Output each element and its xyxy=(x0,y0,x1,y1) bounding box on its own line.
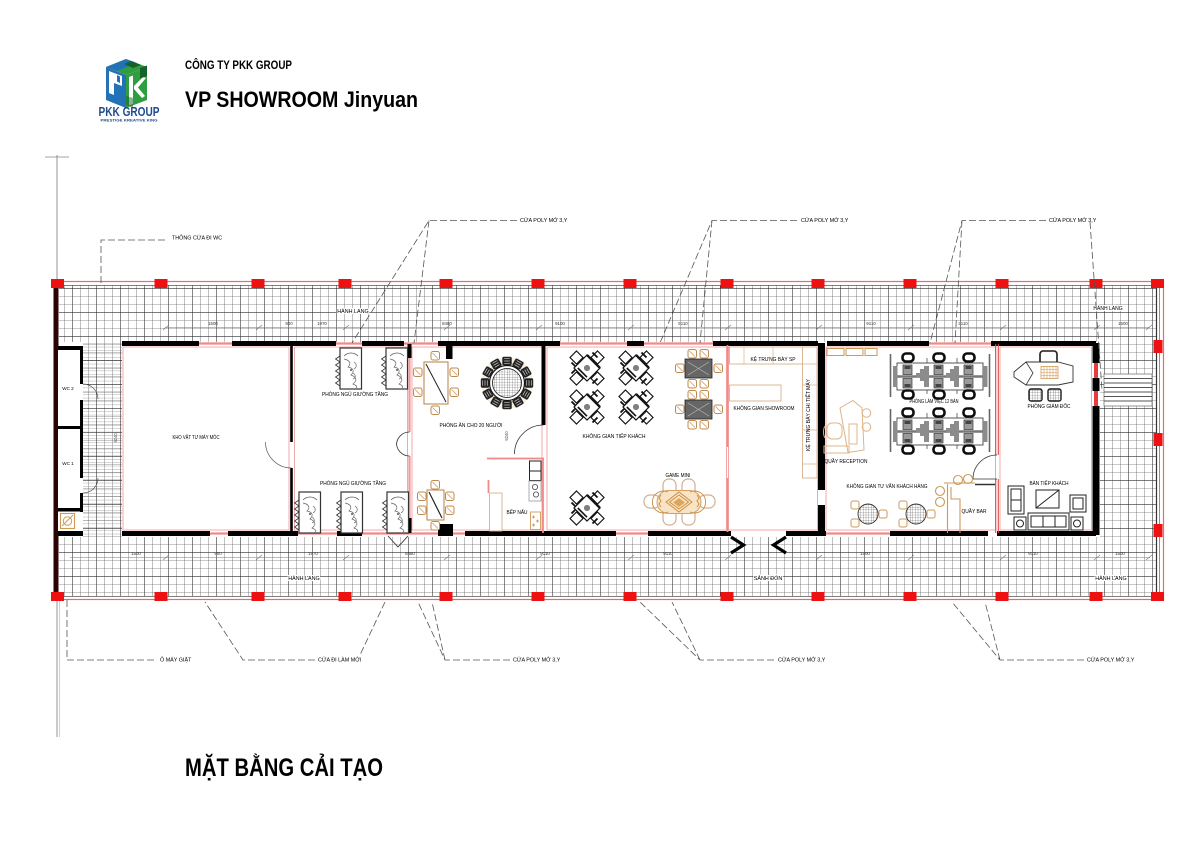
svg-text:Ô MÁY GIẶT: Ô MÁY GIẶT xyxy=(160,657,192,664)
svg-text:QUẦY BAR: QUẦY BAR xyxy=(962,508,987,515)
svg-text:5240: 5240 xyxy=(113,433,118,443)
svg-text:PHÒNG GIÁM ĐỐC: PHÒNG GIÁM ĐỐC xyxy=(1028,403,1071,410)
svg-text:CỬA POLY MỞ 3,Y: CỬA POLY MỞ 3,Y xyxy=(520,217,568,224)
svg-text:1500: 1500 xyxy=(1118,321,1128,326)
svg-text:PHÒNG NGỦ GIƯỜNG TẦNG: PHÒNG NGỦ GIƯỜNG TẦNG xyxy=(320,480,386,487)
svg-text:PHÒNG LÀM VIỆC 12 BÀN: PHÒNG LÀM VIỆC 12 BÀN xyxy=(910,397,959,405)
svg-text:THÔNG CỬA ĐI WC: THÔNG CỬA ĐI WC xyxy=(172,235,222,242)
svg-text:1500: 1500 xyxy=(208,321,218,326)
svg-text:CỬA POLY MỞ 3,Y: CỬA POLY MỞ 3,Y xyxy=(801,217,849,224)
svg-text:CỬA POLY MỞ 3,Y: CỬA POLY MỞ 3,Y xyxy=(1049,217,1097,224)
svg-text:CỬA POLY MỞ 3,Y: CỬA POLY MỞ 3,Y xyxy=(778,657,826,664)
svg-text:PKK GROUP: PKK GROUP xyxy=(99,105,160,119)
svg-text:9110: 9110 xyxy=(866,321,876,326)
svg-text:9110: 9110 xyxy=(1028,551,1038,556)
svg-text:HÀNH LANG: HÀNH LANG xyxy=(1093,305,1122,312)
svg-text:8480: 8480 xyxy=(442,321,452,326)
svg-text:CỬA POLY MỞ 3,Y: CỬA POLY MỞ 3,Y xyxy=(1087,657,1135,664)
svg-text:PHÒNG ĂN CHO 20 NGƯỜI: PHÒNG ĂN CHO 20 NGƯỜI xyxy=(440,422,503,429)
svg-text:KHÔNG GIAN TIẾP KHÁCH: KHÔNG GIAN TIẾP KHÁCH xyxy=(583,433,646,440)
svg-text:SẢNH ĐÓN: SẢNH ĐÓN xyxy=(754,575,783,582)
svg-text:HÀNH LANG: HÀNH LANG xyxy=(337,308,368,315)
svg-text:KỆ TRƯNG BÀY SP: KỆ TRƯNG BÀY SP xyxy=(751,355,796,363)
svg-text:9110: 9110 xyxy=(663,551,673,556)
svg-text:BẾP NẤU: BẾP NẤU xyxy=(507,509,528,516)
svg-text:9100: 9100 xyxy=(555,321,565,326)
svg-text:WC 2: WC 2 xyxy=(62,386,74,391)
svg-text:5240: 5240 xyxy=(504,431,509,441)
svg-text:QUẦY RECEPTION: QUẦY RECEPTION xyxy=(825,458,868,465)
svg-text:1970: 1970 xyxy=(317,321,327,326)
svg-text:900: 900 xyxy=(285,321,293,326)
svg-text:9110: 9110 xyxy=(678,321,688,326)
svg-text:900: 900 xyxy=(214,551,222,556)
svg-text:CỬA ĐI LÀM MỚI: CỬA ĐI LÀM MỚI xyxy=(318,657,361,664)
svg-text:9110: 9110 xyxy=(540,551,550,556)
svg-text:1970: 1970 xyxy=(308,551,318,556)
svg-text:1500: 1500 xyxy=(1115,551,1125,556)
svg-text:HÀNH LANG: HÀNH LANG xyxy=(1095,575,1126,582)
svg-text:KHÔNG GIAN TƯ VẤN KHÁCH HÀNG: KHÔNG GIAN TƯ VẤN KHÁCH HÀNG xyxy=(847,483,928,490)
svg-text:1500: 1500 xyxy=(131,551,141,556)
svg-text:VP SHOWROOM Jinyuan: VP SHOWROOM Jinyuan xyxy=(185,87,418,112)
svg-text:CỬA POLY MỞ 3,Y: CỬA POLY MỞ 3,Y xyxy=(513,657,561,664)
svg-text:KHO VẬT TƯ MÁY MÓC: KHO VẬT TƯ MÁY MÓC xyxy=(173,434,220,441)
svg-text:CÔNG TY PKK GROUP: CÔNG TY PKK GROUP xyxy=(185,57,292,72)
svg-text:8480: 8480 xyxy=(405,551,415,556)
svg-text:BÀN TIẾP KHÁCH: BÀN TIẾP KHÁCH xyxy=(1030,480,1069,487)
svg-text:WC 1: WC 1 xyxy=(62,461,74,466)
svg-text:HÀNH LANG: HÀNH LANG xyxy=(288,575,319,582)
svg-text:1500: 1500 xyxy=(860,551,870,556)
svg-text:PHÒNG NGỦ GIƯỜNG TẦNG: PHÒNG NGỦ GIƯỜNG TẦNG xyxy=(322,391,388,398)
svg-text:GAME MINI: GAME MINI xyxy=(666,473,691,479)
svg-text:PRESTIGE KREATIVE KING: PRESTIGE KREATIVE KING xyxy=(101,119,158,123)
svg-text:KHÔNG GIAN SHOWROOM: KHÔNG GIAN SHOWROOM xyxy=(734,405,795,412)
svg-text:3110: 3110 xyxy=(958,321,968,326)
svg-text:MẶT BẰNG CẢI TẠO: MẶT BẰNG CẢI TẠO xyxy=(185,752,383,782)
svg-text:KỆ TRƯNG BÀY CHI TIẾT MÁY: KỆ TRƯNG BÀY CHI TIẾT MÁY xyxy=(804,378,812,451)
